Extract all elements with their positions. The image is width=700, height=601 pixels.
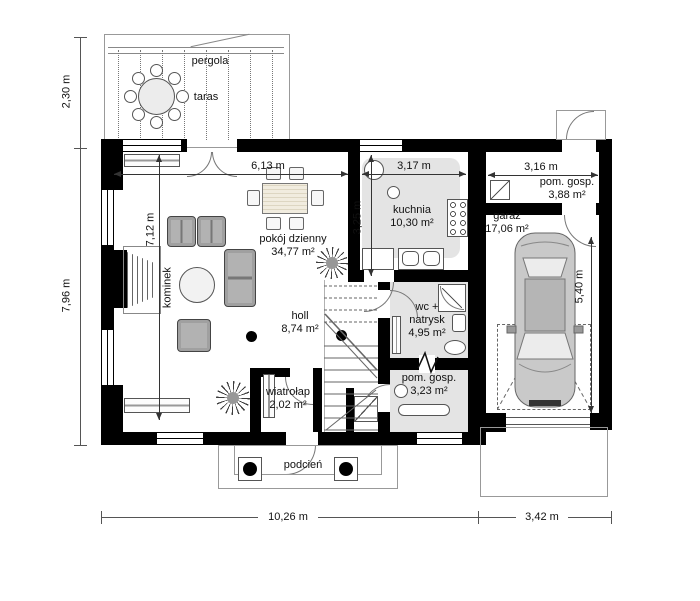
dim-line-living-width <box>114 174 348 175</box>
pergola-label: pergola <box>178 55 242 68</box>
dim-living-depth: 7,12 m <box>145 205 158 255</box>
dimension-tick <box>611 511 612 524</box>
podcien-label: podcień <box>255 459 351 472</box>
window <box>360 139 402 152</box>
window <box>101 330 114 385</box>
wall-segment <box>256 432 286 445</box>
kitchen-cabinet <box>362 248 394 270</box>
terrace-chair <box>132 72 145 85</box>
sink-bowl <box>402 251 419 266</box>
dining-table <box>262 183 308 214</box>
pergola-post-line <box>272 50 273 140</box>
terrace-chair <box>176 90 189 103</box>
wall-segment <box>398 432 417 445</box>
wall-segment <box>101 385 123 433</box>
room-name: natrysk <box>389 314 465 327</box>
dim-kitchen-depth: 3,25 m <box>352 194 365 242</box>
wall-segment <box>402 139 562 152</box>
room-name: wc + <box>389 301 465 314</box>
wall-segment <box>394 270 468 282</box>
dimension-tick <box>74 37 87 38</box>
window <box>101 190 114 245</box>
room-area: 3,88 m² <box>512 189 622 202</box>
dimension-line-left <box>80 37 81 445</box>
dimension-tick <box>101 511 102 524</box>
dim-line-kitchen-depth <box>371 155 372 276</box>
dim-living-width: 6,13 m <box>244 160 292 173</box>
wall-segment <box>203 432 256 445</box>
vestibule-label: wiatrołap 2,02 m² <box>238 386 338 412</box>
toilet <box>444 340 466 355</box>
dim-utility-width: 3,16 m <box>517 161 565 174</box>
dimension-tick <box>478 511 479 524</box>
living-room-label: pokój dzienny 34,77 m² <box>243 233 343 259</box>
room-area: 34,77 m² <box>243 246 343 259</box>
kominek-label: kominek <box>161 260 174 316</box>
dim-garage-width: 3,42 m <box>516 511 568 524</box>
room-area: 17,06 m² <box>462 223 552 236</box>
room-name: kuchnia <box>363 204 461 217</box>
coffee-table <box>179 267 215 303</box>
radiator <box>124 154 180 167</box>
chimney-duct <box>490 180 510 200</box>
garage-label: garaż 17,06 m² <box>462 210 552 236</box>
utility-bench <box>398 404 450 416</box>
armchair <box>177 319 211 352</box>
dim-line-garage-depth <box>591 237 592 413</box>
room-area: 2,02 m² <box>238 399 338 412</box>
utility-lower-label: pom. gosp. 3,23 m² <box>381 372 477 398</box>
room-name: pom. gosp. <box>512 176 622 189</box>
dim-house-depth: 7,96 m <box>61 272 74 320</box>
dining-chair <box>266 217 281 230</box>
dim-line-kitchen-width <box>362 174 466 175</box>
room-name: pokój dzienny <box>243 233 343 246</box>
wall-segment <box>181 139 187 152</box>
room-area: 10,30 m² <box>363 217 461 230</box>
terrace-chair <box>150 116 163 129</box>
room-name: pom. gosp. <box>381 372 477 385</box>
dim-terrace-depth: 2,30 m <box>61 68 74 116</box>
room-name: garaż <box>462 210 552 223</box>
dim-line-living-depth <box>159 155 160 420</box>
room-area: 3,23 m² <box>381 385 477 398</box>
kitchen-appliance <box>387 186 400 199</box>
garage-door <box>506 417 590 425</box>
wall-segment <box>101 139 123 190</box>
radiator <box>124 398 190 413</box>
room-area: 4,95 m² <box>389 327 465 340</box>
pergola-post-line <box>118 50 119 140</box>
wall-segment <box>237 139 360 152</box>
room-name: holl <box>255 310 345 323</box>
dim-kitchen-width: 3,17 m <box>390 160 438 173</box>
wc-label: wc + natrysk 4,95 m² <box>389 301 465 341</box>
sofa <box>197 216 226 247</box>
dining-chair <box>311 190 324 206</box>
floor-plan: pergola taras <box>0 0 700 601</box>
sofa <box>167 216 196 247</box>
kitchen-label: kuchnia 10,30 m² <box>363 204 461 230</box>
dining-chair <box>247 190 260 206</box>
dimension-tick <box>74 148 87 149</box>
dim-line-utility-width <box>488 175 598 176</box>
window <box>123 139 181 152</box>
sink-bowl <box>423 251 440 266</box>
pergola-beam <box>108 47 284 48</box>
terrace-chair <box>124 90 137 103</box>
terrace-chair <box>168 72 181 85</box>
pergola-post-line <box>250 50 251 140</box>
pergola-beam <box>108 53 284 54</box>
dining-chair <box>289 217 304 230</box>
utility-upper-label: pom. gosp. 3,88 m² <box>512 176 622 202</box>
room-name: wiatrołap <box>238 386 338 399</box>
window <box>157 432 203 445</box>
side-porch <box>556 110 606 140</box>
window <box>417 432 462 445</box>
wall-segment <box>596 203 600 215</box>
kitchen-appliance <box>364 160 384 180</box>
car <box>506 230 584 410</box>
terrace-chair <box>132 108 145 121</box>
dim-house-width: 10,26 m <box>258 511 318 524</box>
hall-label: holl 8,74 m² <box>255 310 345 336</box>
dim-garage-depth: 5,40 m <box>574 263 587 311</box>
driveway <box>480 427 608 497</box>
dimension-tick <box>74 445 87 446</box>
terrace-chair <box>150 64 163 77</box>
wall-segment <box>318 432 398 445</box>
wall-segment <box>378 412 390 432</box>
room-area: 8,74 m² <box>255 323 345 336</box>
wall-segment <box>101 432 157 445</box>
terrace-chair <box>168 108 181 121</box>
